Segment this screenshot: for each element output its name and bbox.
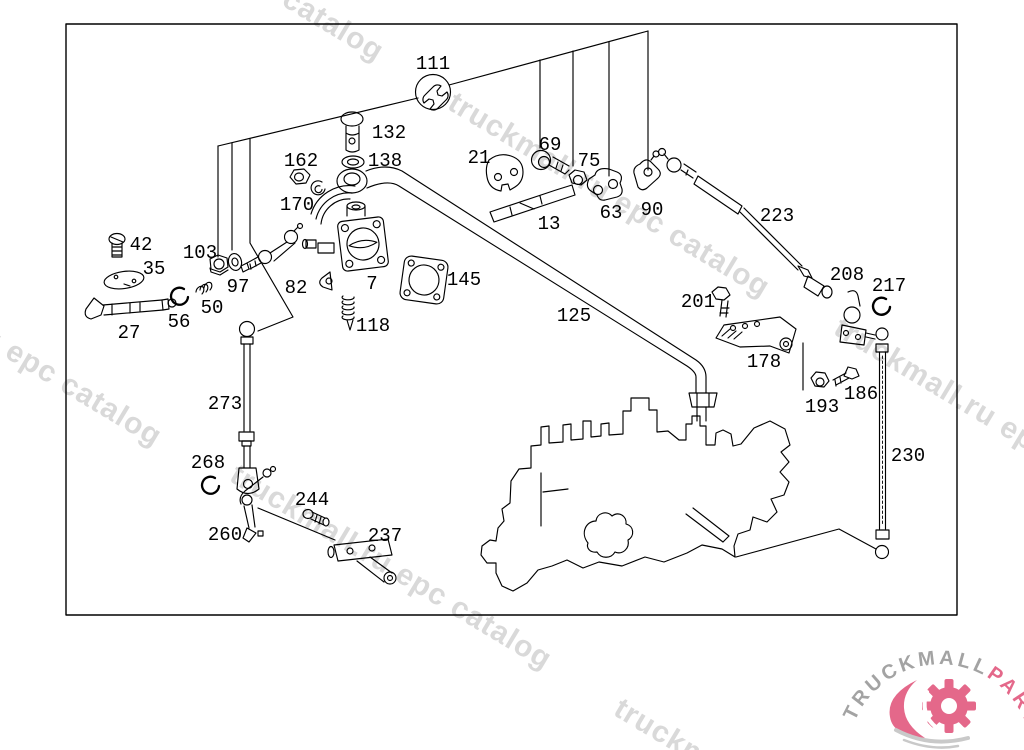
part-111-wrench-symbol <box>416 75 451 111</box>
part-label-69: 69 <box>539 134 562 156</box>
part-label-217: 217 <box>872 275 906 297</box>
part-217-snap-ring <box>873 298 890 315</box>
part-label-230: 230 <box>891 445 925 467</box>
part-label-223: 223 <box>760 205 794 227</box>
part-label-103: 103 <box>183 242 217 264</box>
part-label-208: 208 <box>830 264 864 286</box>
part-label-260: 260 <box>208 524 242 546</box>
part-56-clip <box>171 288 188 305</box>
part-145-gasket <box>399 255 449 305</box>
logo-brand-text: TRUCKMALL <box>839 647 993 724</box>
watermark-text: truckmall.ru epc catalog <box>224 458 557 676</box>
leader-lines <box>218 31 876 557</box>
part-label-193: 193 <box>805 396 839 418</box>
part-label-13: 13 <box>538 213 561 235</box>
exploded-parts-diagram: truckmall.ru epc catalog truckmall.ru ep… <box>0 0 1024 750</box>
part-label-132: 132 <box>372 122 406 144</box>
part-label-125: 125 <box>557 305 591 327</box>
part-label-90: 90 <box>641 199 664 221</box>
part-label-63: 63 <box>600 202 623 224</box>
part-label-97: 97 <box>227 276 250 298</box>
part-label-75: 75 <box>578 150 601 172</box>
part-178-bracket <box>716 317 796 353</box>
part-132-banjo-bolt <box>341 112 363 152</box>
part-label-21: 21 <box>468 147 491 169</box>
part-97-washer <box>227 252 243 271</box>
part-170-seal <box>311 181 325 195</box>
watermark-layer: truckmall.ru epc catalog truckmall.ru ep… <box>0 0 1024 750</box>
part-268-clip <box>202 477 219 494</box>
part-label-27: 27 <box>118 322 141 344</box>
part-label-201: 201 <box>681 291 715 313</box>
part-label-118: 118 <box>356 315 390 337</box>
part-label-145: 145 <box>447 269 481 291</box>
gear-icon <box>922 679 976 733</box>
part-label-7: 7 <box>366 273 377 295</box>
part-label-82: 82 <box>285 277 308 299</box>
part-label-244: 244 <box>295 489 329 511</box>
diagram-frame <box>66 24 957 615</box>
part-label-56: 56 <box>168 311 191 333</box>
part-138-washer <box>342 156 364 168</box>
watermark-text: truckmall.ru epc catalog <box>828 311 1024 529</box>
part-label-186: 186 <box>844 383 878 405</box>
part-label-111: 111 <box>416 53 450 75</box>
part-13-shaft <box>490 185 575 222</box>
part-21-plate <box>486 155 523 191</box>
part-50-spring <box>196 282 212 294</box>
part-193-nut <box>811 372 829 387</box>
engine-outline <box>481 398 790 591</box>
watermark-text: truckmall.ru epc catalog <box>56 0 389 68</box>
part-label-237: 237 <box>368 525 402 547</box>
part-label-50: 50 <box>201 297 224 319</box>
part-label-35: 35 <box>143 258 166 280</box>
part-label-162: 162 <box>284 150 318 172</box>
part-27-lever <box>85 298 176 319</box>
part-label-138: 138 <box>368 150 402 172</box>
part-42-screw <box>109 234 125 258</box>
parts-catalog-page: truckmall.ru epc catalog truckmall.ru ep… <box>0 0 1024 750</box>
part-118-spring-screw <box>342 296 354 330</box>
part-label-268: 268 <box>191 452 225 474</box>
part-35-plate <box>103 269 145 291</box>
part-90-lever <box>634 151 660 190</box>
part-label-170: 170 <box>280 194 314 216</box>
diagram-linework <box>66 24 957 615</box>
part-label-273: 273 <box>208 393 242 415</box>
part-label-178: 178 <box>747 351 781 373</box>
part-label-42: 42 <box>130 234 153 256</box>
